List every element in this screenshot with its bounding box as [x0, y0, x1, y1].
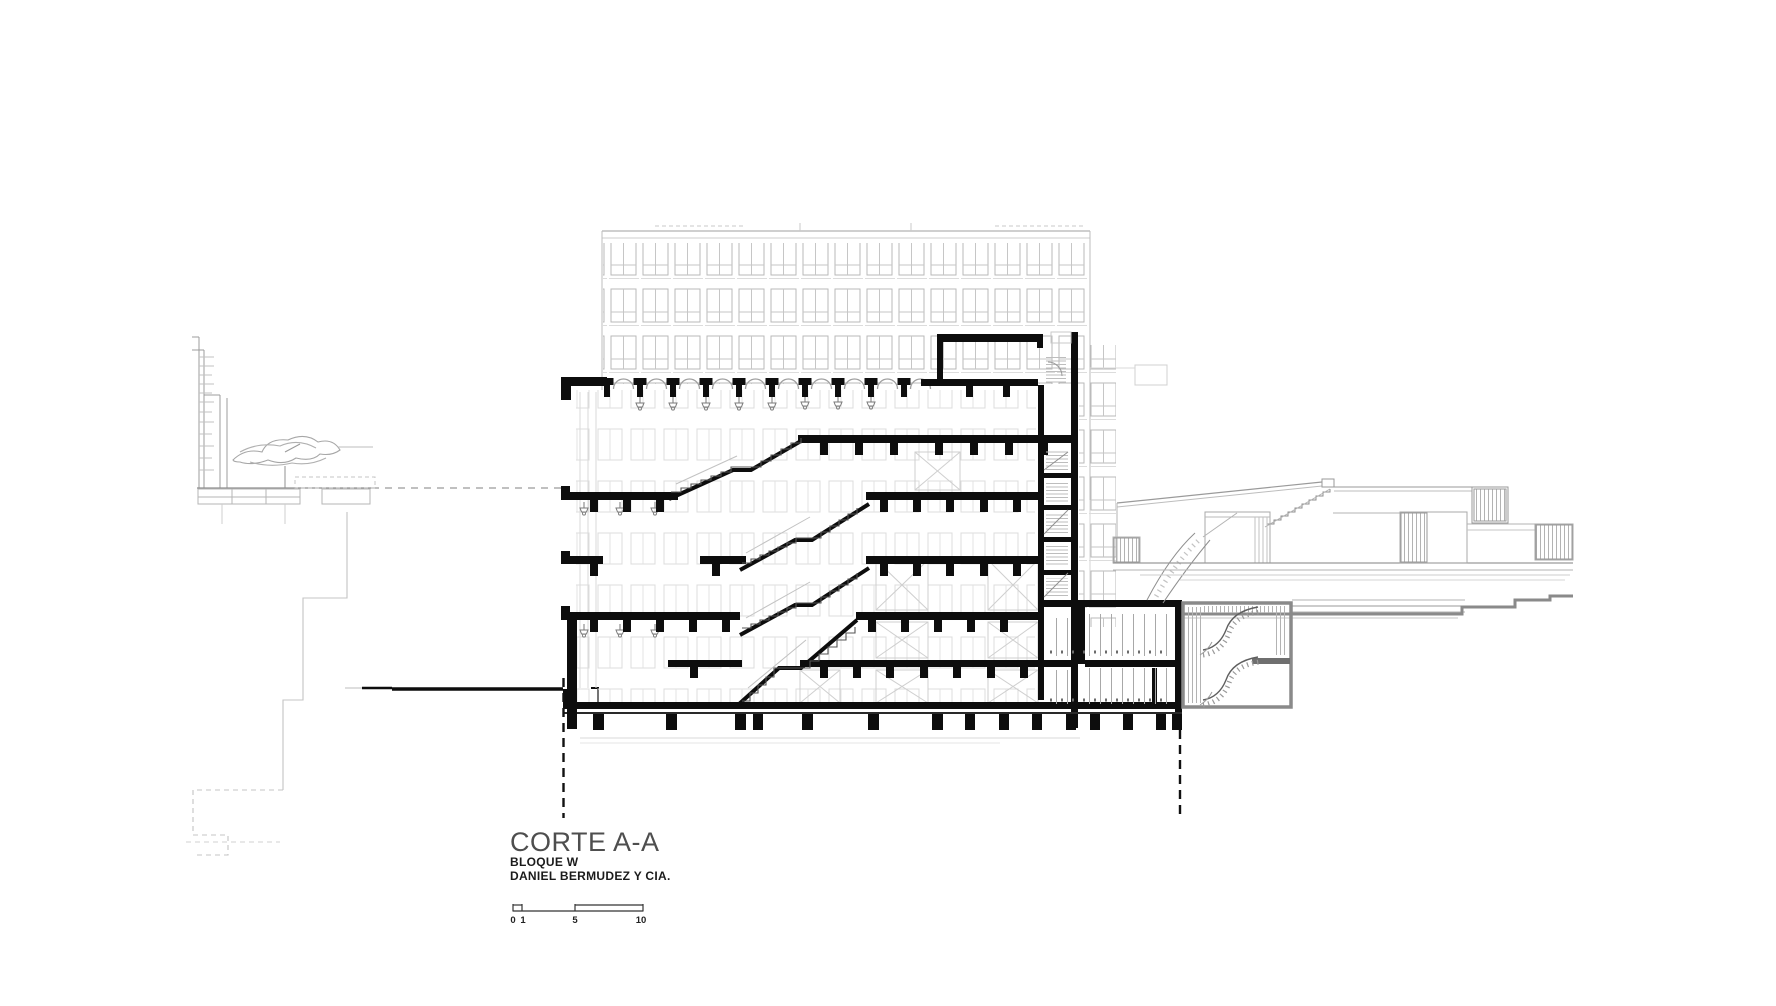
- window-grid-upper: [603, 243, 1087, 384]
- sheet: 0 1 5 10 CORTE A-A BLOQUE W DANIEL BERMU…: [0, 0, 1776, 1006]
- roof-vegetation-dashes: [655, 223, 1085, 231]
- annex-fixtures: [1048, 614, 1171, 704]
- section-title: CORTE A-A: [510, 829, 671, 855]
- firm-label: DANIEL BERMUDEZ Y CIA.: [510, 870, 671, 883]
- title-block: CORTE A-A BLOQUE W DANIEL BERMUDEZ Y CIA…: [510, 829, 671, 883]
- context-building-outline: [192, 337, 227, 489]
- window-grid-right-sliver: [1079, 345, 1116, 627]
- scale-label-5: 5: [572, 915, 578, 926]
- block-label: BLOQUE W: [510, 856, 671, 869]
- tree-icon: [233, 436, 373, 489]
- site-context-left: [186, 337, 598, 855]
- basement-outline: [186, 512, 347, 855]
- scale-label-0: 0: [510, 915, 515, 926]
- section-drawing: 0 1 5 10: [0, 0, 1776, 1006]
- left-wall-stubs: [561, 486, 570, 619]
- context-box-right: [1135, 365, 1167, 385]
- scale-label-10: 10: [636, 915, 647, 926]
- shaft-left-wall: [1038, 385, 1044, 700]
- plaza-deck-structure: [1113, 479, 1573, 618]
- curved-stairs-box: [1183, 603, 1291, 707]
- curved-stair-lower: [1200, 657, 1260, 705]
- right-main-wall: [1071, 332, 1078, 728]
- scale-bar: 0 1 5 10: [510, 904, 646, 926]
- ground-slab: [563, 702, 1182, 730]
- street-level-line: [345, 688, 598, 702]
- scale-label-1: 1: [520, 915, 526, 926]
- planters: [198, 477, 375, 524]
